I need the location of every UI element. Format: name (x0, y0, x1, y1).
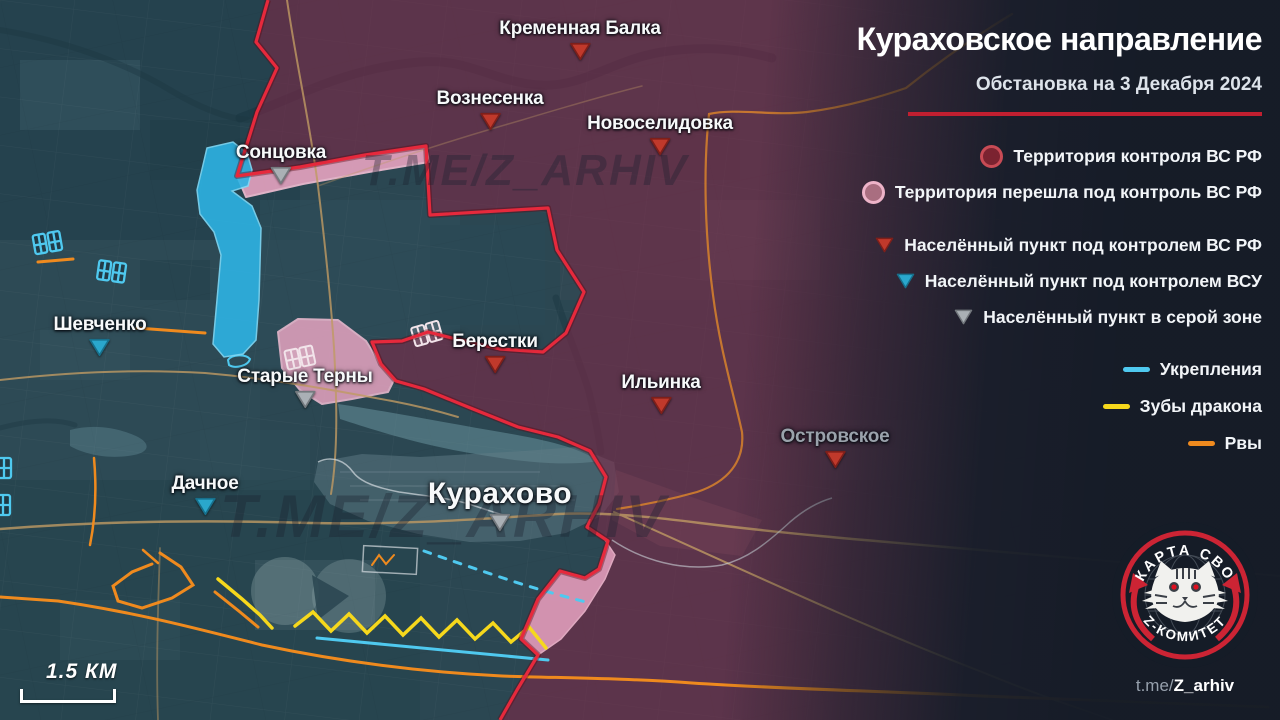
triangle-red-icon (875, 237, 894, 253)
legend-settlements: Населённый пункт под контролем ВС РФНасе… (822, 227, 1262, 335)
legend-item-label: Рвы (1225, 433, 1262, 454)
town-label: Ильинка (621, 372, 700, 394)
line-yellow-icon (1103, 404, 1130, 409)
map-town: Новоселидовка (587, 113, 733, 156)
triangle-red-icon (484, 355, 506, 374)
town-label: Берестки (452, 331, 538, 353)
legend-item-label: Населённый пункт под контролем ВС РФ (904, 235, 1262, 256)
triangle-red-icon (569, 42, 591, 61)
handle-name: Z_arhiv (1174, 676, 1234, 695)
map-screenshot: T.ME/Z_ARHIV T.ME/Z_ARHIV Кременная Балк… (0, 0, 1280, 720)
legend-item: Укрепления (822, 351, 1262, 388)
legend-item-label: Территория перешла под контроль ВС РФ (895, 182, 1262, 203)
town-label: Новоселидовка (587, 113, 733, 135)
page-title: Кураховское направление (822, 20, 1262, 58)
legend-item: Территория перешла под контроль ВС РФ (822, 174, 1262, 210)
map-town: Берестки (452, 331, 538, 374)
circle-red-icon (980, 145, 1003, 168)
map-town: Вознесенка (437, 88, 544, 131)
triangle-red-icon (649, 137, 671, 156)
triangle-gray-icon (294, 390, 316, 409)
legend-lines: УкрепленияЗубы драконаРвы (822, 351, 1262, 462)
map-town: Ильинка (621, 372, 700, 415)
handle-prefix: t.me/ (1136, 676, 1174, 695)
legend-item: Рвы (822, 425, 1262, 462)
line-orange-icon (1188, 441, 1215, 446)
legend-item-label: Зубы дракона (1140, 396, 1262, 417)
logo-badge-icon: КАРТА СВО Z-КОМИТЕТ (1108, 518, 1262, 672)
triangle-gray-icon (489, 513, 511, 532)
line-cyan-icon (1123, 367, 1150, 372)
legend-item: Населённый пункт под контролем ВС РФ (822, 227, 1262, 263)
map-town: Кременная Балка (499, 18, 660, 61)
legend-item: Территория контроля ВС РФ (822, 138, 1262, 174)
scale-bar: 1.5 КМ (20, 660, 117, 703)
telegram-handle: t.me/Z_arhiv (1098, 676, 1272, 696)
legend-item-label: Населённый пункт в серой зоне (983, 307, 1262, 328)
legend-item-label: Укрепления (1160, 359, 1262, 380)
date-subtitle: Обстановка на 3 Декабря 2024 (822, 74, 1262, 96)
map-town: Сонцовка (236, 142, 326, 185)
triangle-gray-icon (954, 309, 973, 325)
triangle-cyan-icon (194, 497, 216, 516)
town-label: Старые Терны (237, 366, 372, 388)
triangle-cyan-icon (896, 273, 915, 289)
divider (908, 112, 1262, 116)
town-label: Шевченко (54, 314, 147, 336)
town-label: Дачное (171, 473, 238, 495)
z-komitet-logo: КАРТА СВО Z-КОМИТЕТ (1108, 518, 1262, 672)
town-label: Курахово (428, 477, 572, 511)
legend-item: Населённый пункт под контролем ВСУ (822, 263, 1262, 299)
map-town: Шевченко (54, 314, 147, 357)
triangle-cyan-icon (89, 338, 111, 357)
legend-item-label: Территория контроля ВС РФ (1013, 146, 1262, 167)
town-label: Кременная Балка (499, 18, 660, 40)
triangle-gray-icon (270, 166, 292, 185)
scale-label: 1.5 КМ (46, 660, 117, 684)
triangle-red-icon (479, 112, 501, 131)
town-label: Вознесенка (437, 88, 544, 110)
circle-pink-icon (862, 181, 885, 204)
legend-item-label: Населённый пункт под контролем ВСУ (925, 271, 1262, 292)
map-town: Дачное (171, 473, 238, 516)
map-town: Курахово (428, 477, 572, 532)
map-town: Старые Терны (237, 366, 372, 409)
town-label: Сонцовка (236, 142, 326, 164)
info-panel: Кураховское направление Обстановка на 3 … (822, 0, 1280, 462)
legend-item: Зубы дракона (822, 388, 1262, 425)
scale-bracket (20, 689, 116, 703)
legend-item: Населённый пункт в серой зоне (822, 299, 1262, 335)
legend-areas: Территория контроля ВС РФТерритория пере… (822, 138, 1262, 210)
triangle-red-icon (650, 396, 672, 415)
